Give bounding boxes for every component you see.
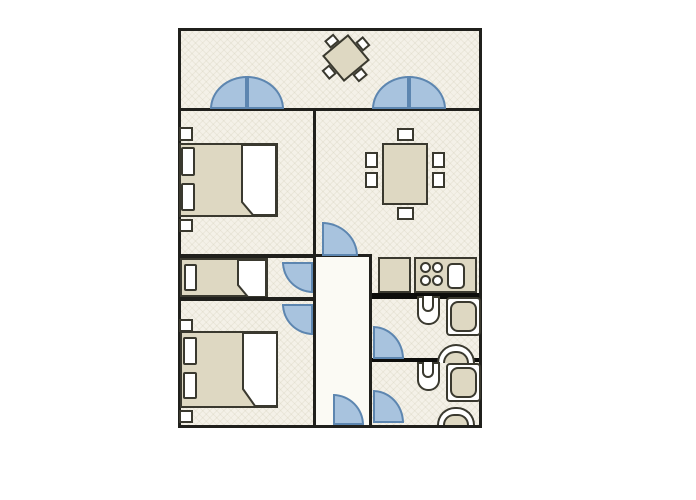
dining-chair bbox=[432, 172, 445, 188]
dining-chair bbox=[432, 152, 445, 168]
kitchen-counter bbox=[378, 257, 411, 293]
wall-bedroom-single bbox=[181, 254, 313, 258]
wall-main-vertical bbox=[313, 108, 316, 425]
floor-plan-canvas bbox=[0, 0, 696, 500]
wall-corridor-right bbox=[369, 254, 372, 425]
kitchen-sink bbox=[447, 263, 465, 289]
bed-folded-sheet bbox=[241, 331, 280, 408]
toilet-bowl bbox=[422, 296, 434, 312]
shower-tray bbox=[450, 301, 477, 332]
dining-chair bbox=[365, 172, 378, 188]
dining-chair bbox=[397, 128, 414, 141]
washbasin-bowl bbox=[443, 414, 469, 425]
nightstand bbox=[179, 127, 193, 141]
dining-chair bbox=[397, 207, 414, 220]
stove-burner bbox=[432, 262, 443, 273]
bed-folded-sheet bbox=[236, 258, 268, 299]
nightstand bbox=[179, 410, 193, 423]
stove-burner bbox=[420, 275, 431, 286]
dining-chair bbox=[365, 152, 378, 168]
pillow bbox=[181, 147, 195, 176]
nightstand bbox=[179, 219, 193, 232]
pillow bbox=[181, 183, 195, 211]
pillow bbox=[183, 337, 197, 365]
dining-table bbox=[382, 143, 428, 205]
wall-single-bedroom bbox=[181, 297, 313, 301]
pillow bbox=[183, 372, 197, 399]
shower-tray bbox=[450, 367, 477, 398]
bed-folded-sheet bbox=[240, 143, 278, 217]
stove-burner bbox=[432, 275, 443, 286]
pillow bbox=[184, 264, 197, 291]
stove-burner bbox=[420, 262, 431, 273]
toilet-bowl bbox=[422, 362, 434, 378]
